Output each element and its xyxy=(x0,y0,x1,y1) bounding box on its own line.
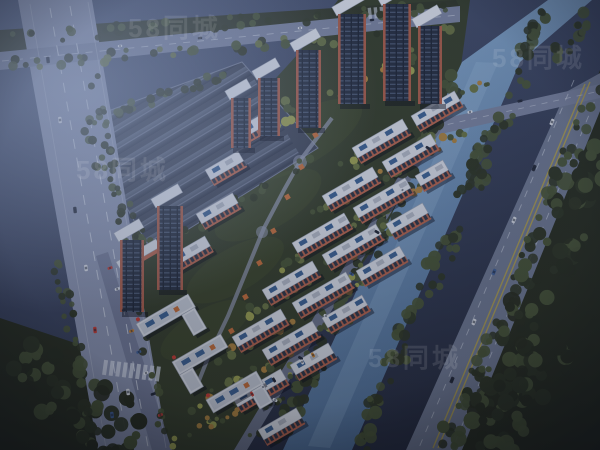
scene-canvas xyxy=(0,0,600,450)
aerial-render: 58同城 58同城 58同城 58同城 xyxy=(0,0,600,450)
vignette xyxy=(0,0,600,450)
